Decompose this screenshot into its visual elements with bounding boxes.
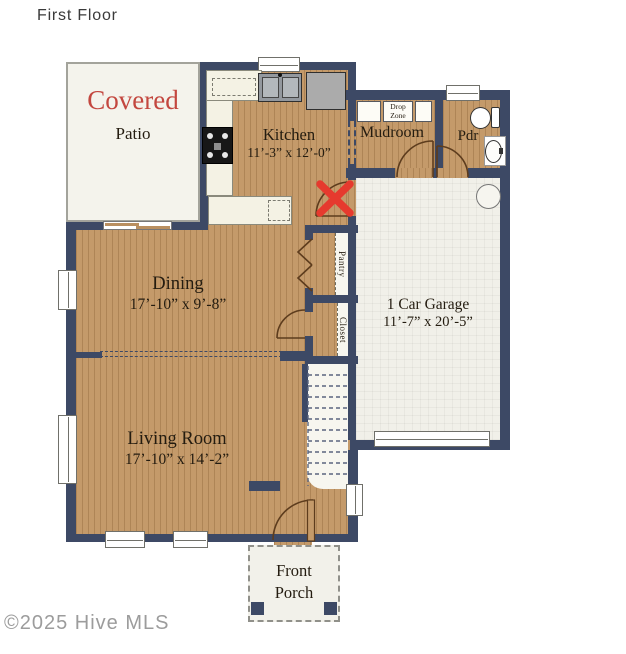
patio-slider-door: [103, 221, 172, 230]
wall-stair-left: [302, 364, 308, 422]
garage-door-panel-line: [376, 439, 488, 440]
living-room-dims: 17’-10” x 14’-2”: [84, 451, 270, 468]
dining-dims: 17’-10” x 9’-8”: [88, 296, 268, 313]
mudroom-door-threshold: [395, 168, 433, 178]
powder-door-threshold: [437, 168, 468, 178]
drop-zone-cabinet-left: [357, 101, 381, 122]
dining-name: Dining: [88, 274, 268, 295]
powder-label: Pdr: [443, 128, 493, 145]
pantry-label: Pantry: [334, 235, 350, 293]
drop-zone-label-2: Zone: [390, 112, 405, 120]
living-window-south-2-mullion: [175, 540, 206, 541]
watermark: ©2025 Hive MLS: [4, 612, 169, 635]
island-overhang-dashed: [268, 200, 290, 221]
closet-label: Closet: [336, 305, 350, 355]
sink-basin-left: [262, 77, 279, 98]
garage-door: [374, 431, 490, 447]
sink-basin-right: [282, 77, 299, 98]
living-room-label: Living Room 17’-10” x 14’-2”: [84, 429, 270, 468]
living-window-west: [58, 415, 77, 484]
living-window-south-1-mullion: [107, 540, 143, 541]
wall-mudroom-top: [346, 90, 510, 100]
stove-icon: [202, 127, 233, 164]
sink-faucet: [278, 73, 282, 77]
wall-foyer-stub: [249, 481, 280, 491]
stove-center: [214, 143, 221, 150]
patio-slider-panel-1: [105, 223, 139, 226]
dining-window-mullion: [68, 272, 69, 308]
separator-stub: [76, 352, 102, 358]
water-heater-icon: [476, 184, 501, 209]
wall-pantry-west-b: [305, 288, 313, 312]
burner-4: [222, 152, 228, 158]
staircase: [307, 364, 348, 489]
upper-cabinets-dashed: [212, 78, 256, 96]
garage-name: 1 Car Garage: [360, 296, 496, 313]
living-window-west-mullion: [68, 417, 69, 482]
garage-label: 1 Car Garage 11’-7” x 20’-5”: [360, 296, 496, 331]
pedestal-sink-faucet: [499, 148, 503, 154]
drop-zone-cabinet-right: [415, 101, 432, 122]
patio-label-patio: Patio: [66, 124, 200, 143]
floor-plan: First Floor ©2025 Hive MLS Covered Patio: [0, 0, 626, 654]
living-room-name: Living Room: [84, 429, 270, 450]
porch-label: Front Porch: [248, 560, 340, 605]
page-title: First Floor: [37, 7, 118, 25]
living-window-south-1: [105, 531, 145, 548]
dining-window: [58, 270, 77, 310]
kitchen-dims: 11’-3” x 12’-0”: [230, 145, 348, 160]
kitchen-sink-icon: [258, 73, 302, 102]
kitchen-window: [258, 57, 300, 72]
toilet-icon: [470, 107, 491, 129]
wall-closet-west: [305, 336, 313, 364]
wall-spine-mid: [348, 164, 356, 180]
wall-spine-upper: [348, 70, 356, 121]
powder-window: [446, 85, 480, 101]
porch-label-line1: Front: [248, 560, 340, 582]
burner-2: [222, 133, 228, 139]
kitchen-window-mullion: [260, 65, 298, 66]
mudroom-label: Mudroom: [350, 124, 434, 142]
garage-entry-door-gap: [348, 180, 356, 216]
wall-mudroom-bottom-mid: [433, 168, 437, 178]
dining-living-separator: [100, 351, 282, 357]
foyer-window-east: [346, 484, 363, 516]
living-window-south-2: [173, 531, 208, 548]
refrigerator-icon: [306, 72, 346, 110]
foyer-window-east-mullion: [355, 486, 356, 514]
kitchen-label: Kitchen 11’-3” x 12’-0”: [230, 126, 348, 161]
toilet-tank: [491, 107, 500, 128]
patio-slider-panel-2: [136, 226, 170, 229]
kitchen-name: Kitchen: [230, 126, 348, 144]
drop-zone-cabinet-center: Drop Zone: [383, 101, 413, 122]
porch-label-line2: Porch: [248, 582, 340, 604]
patio-label-covered: Covered: [66, 85, 200, 115]
powder-window-mullion: [448, 93, 478, 94]
wall-mudroom-powder-divider: [435, 100, 443, 168]
burner-3: [207, 152, 213, 158]
burner-1: [207, 133, 213, 139]
garage-dims: 11’-7” x 20’-5”: [360, 314, 496, 330]
dining-label: Dining 17’-10” x 9’-8”: [88, 274, 268, 313]
wall-pantry-west-a: [305, 233, 313, 240]
